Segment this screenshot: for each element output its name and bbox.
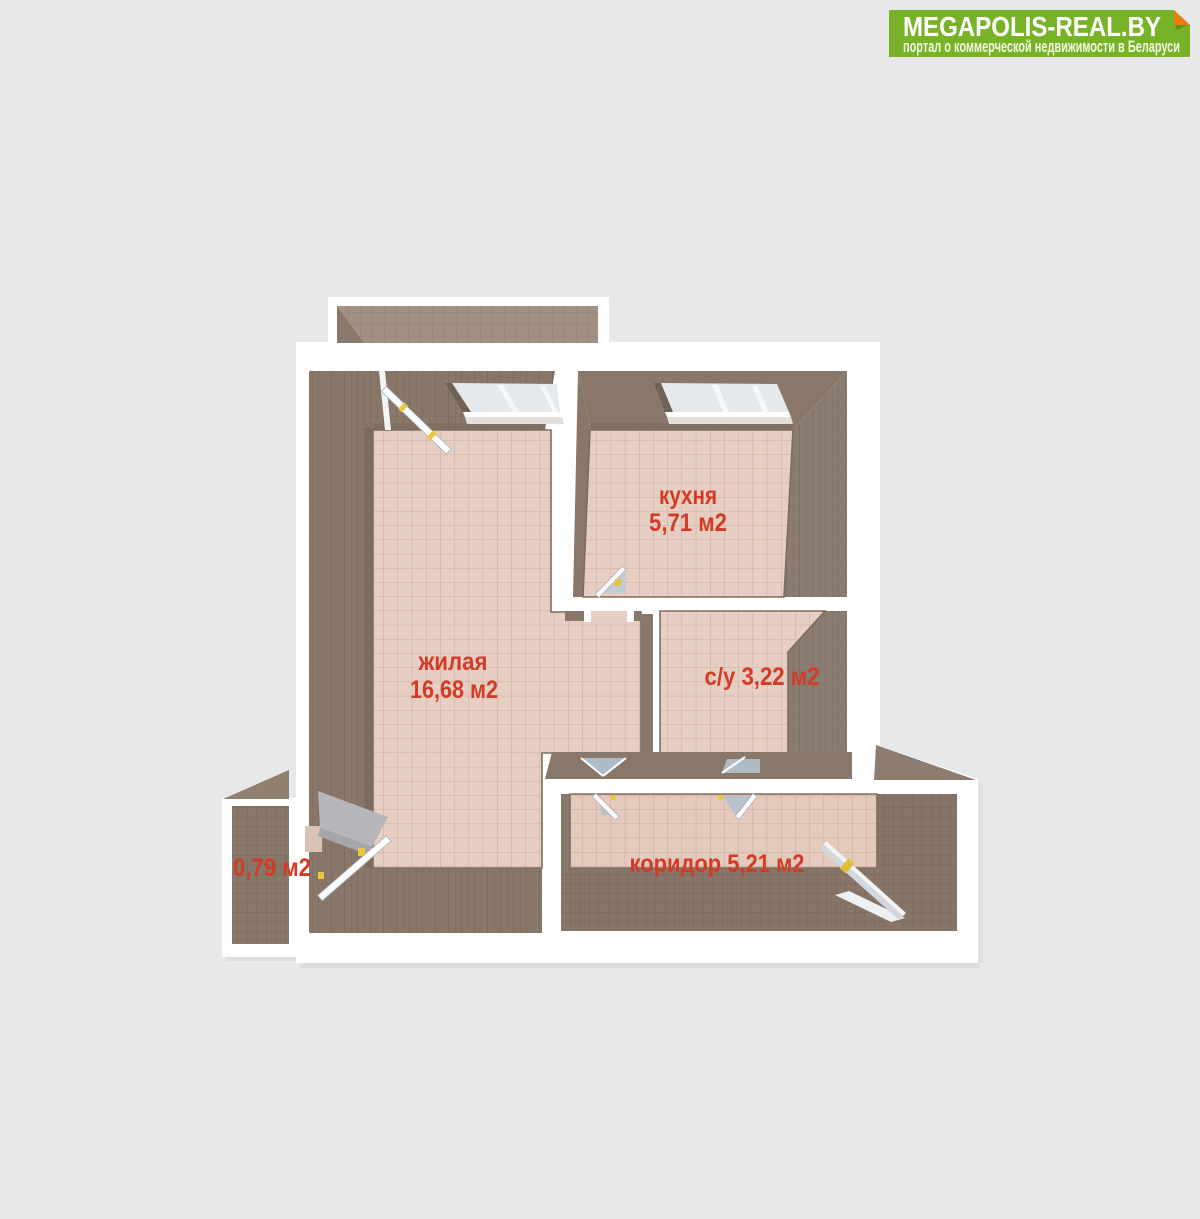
svg-text:кухня: кухня [659, 482, 717, 510]
svg-text:портал о коммерческой недвижим: портал о коммерческой недвижимости в Бел… [903, 37, 1180, 56]
svg-text:жилая: жилая [418, 648, 488, 676]
svg-text:с/у 3,22 м2: с/у 3,22 м2 [705, 663, 820, 691]
svg-text:0,79 м2: 0,79 м2 [233, 854, 311, 882]
svg-text:коридор 5,21 м2: коридор 5,21 м2 [630, 850, 805, 878]
svg-text:5,71 м2: 5,71 м2 [649, 509, 727, 537]
svg-text:16,68 м2: 16,68 м2 [410, 676, 498, 704]
